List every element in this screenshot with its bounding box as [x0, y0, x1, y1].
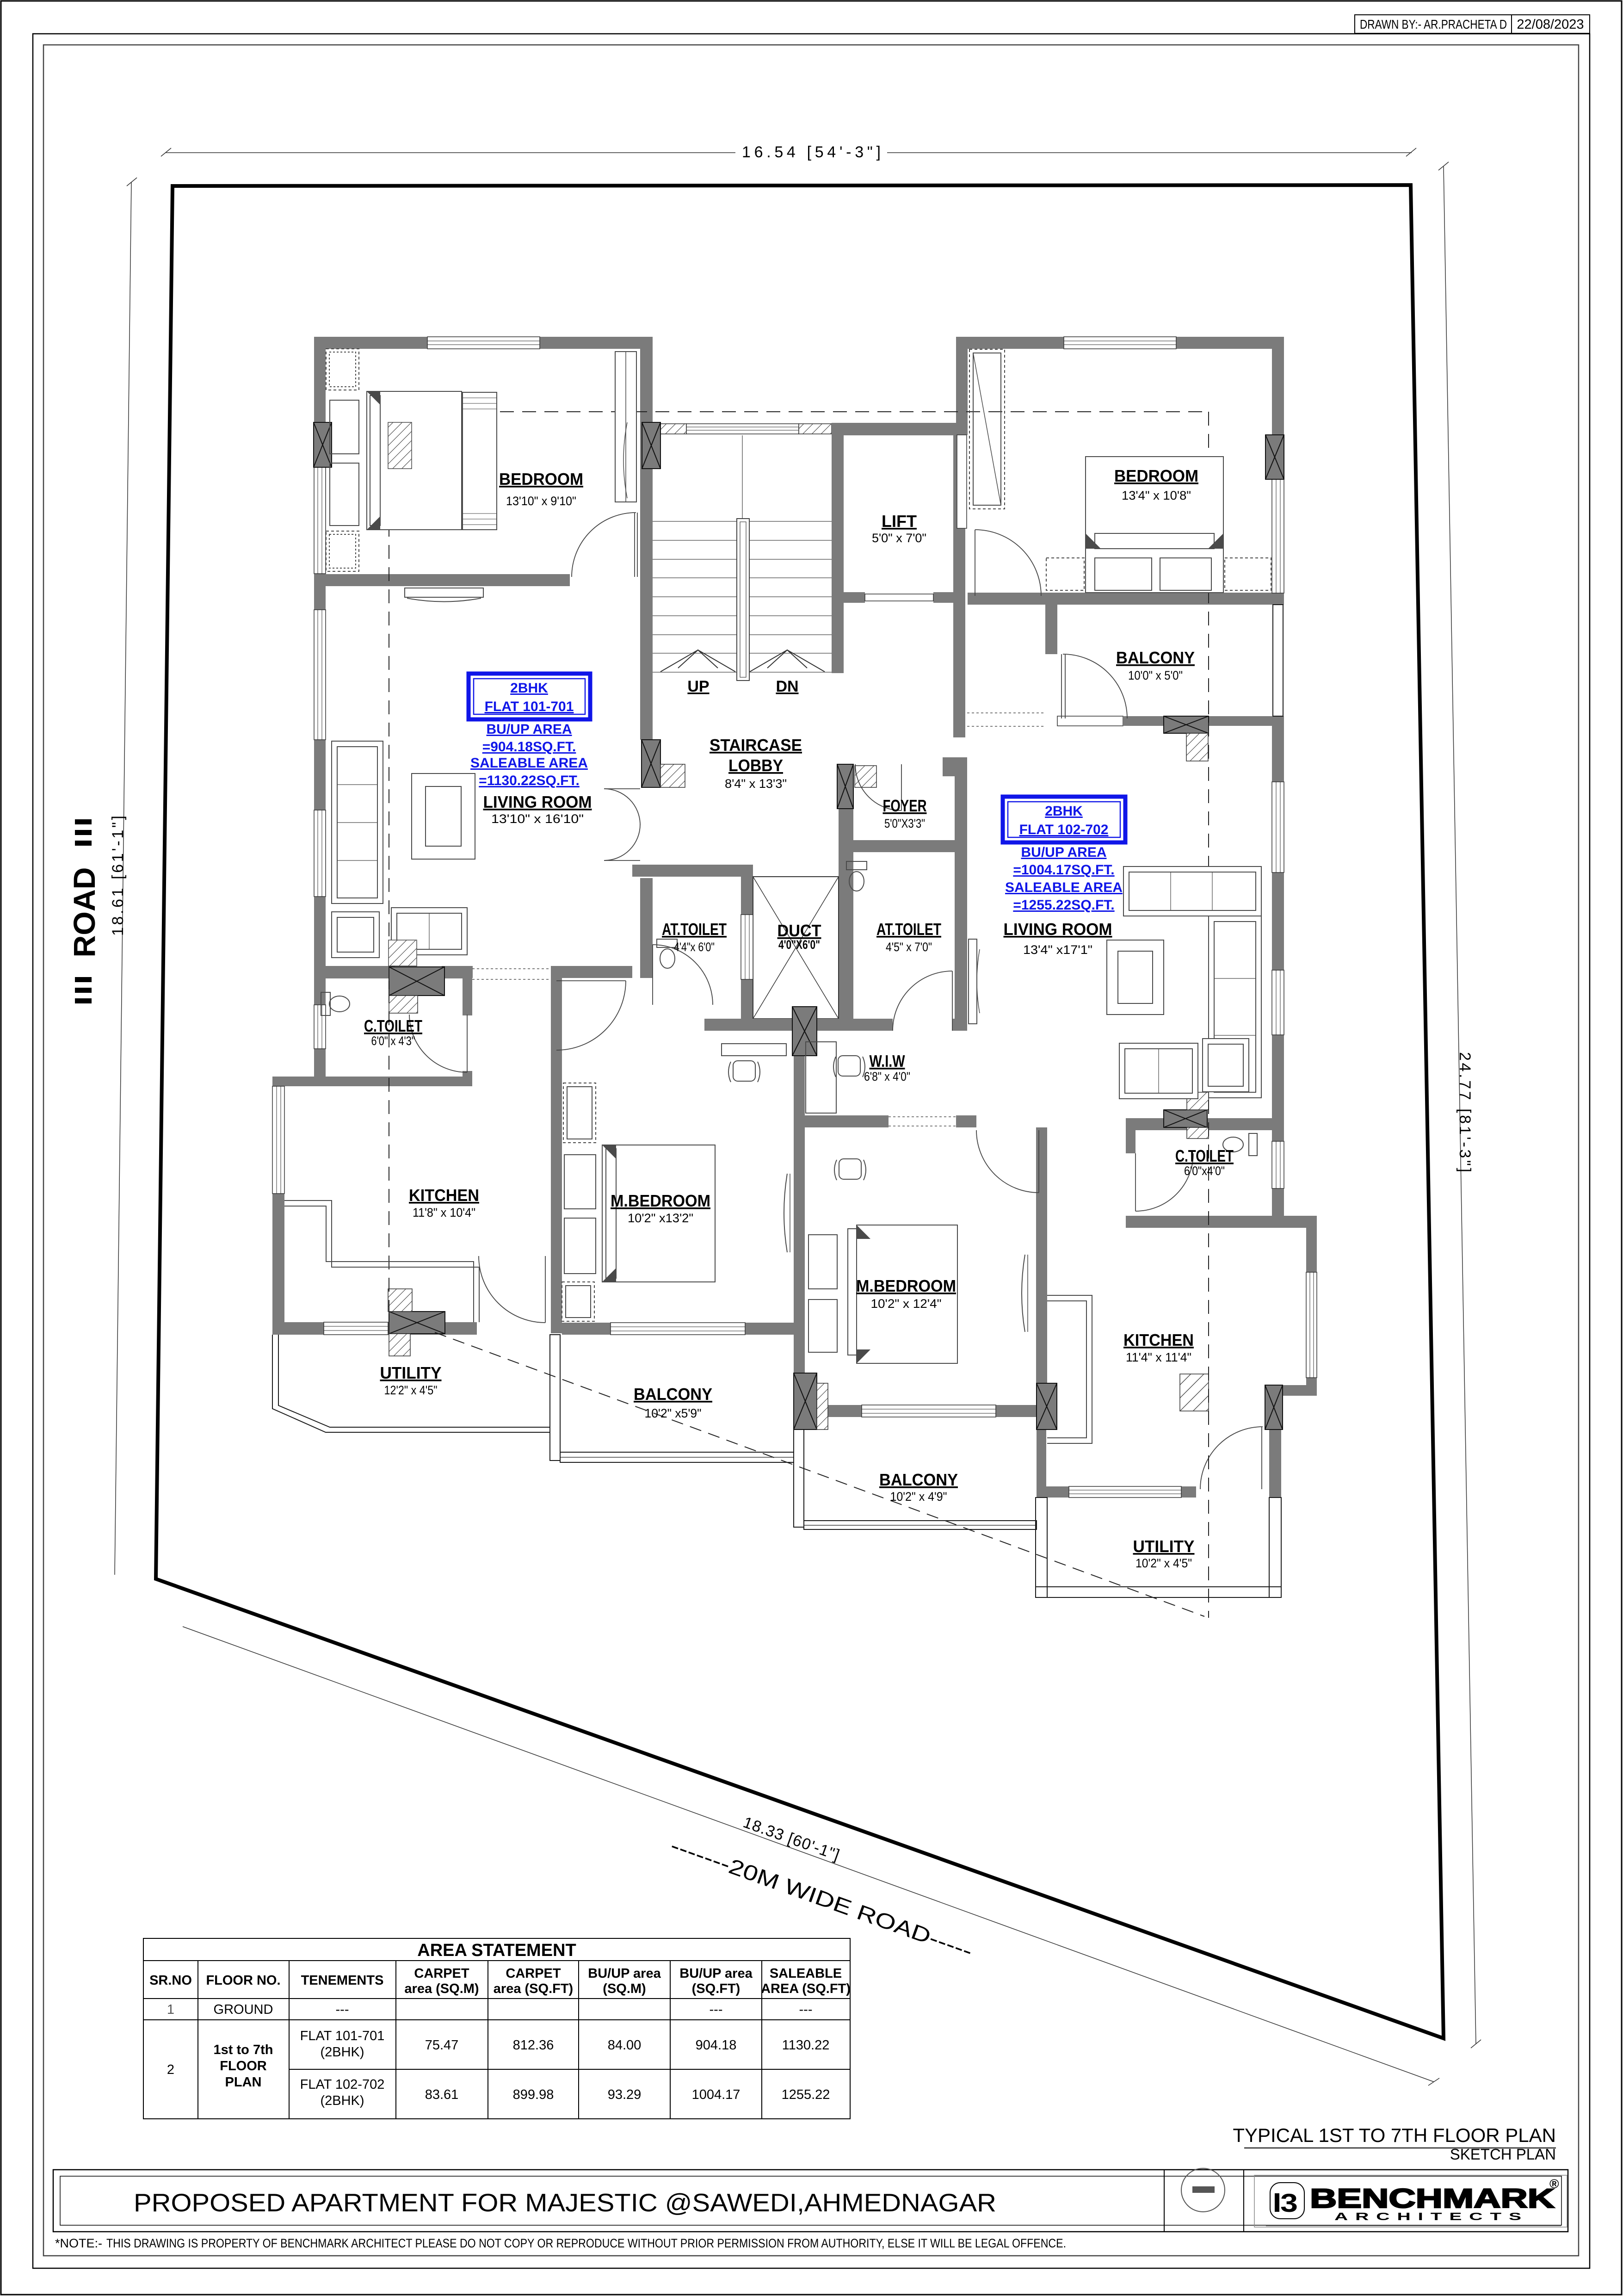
svg-text:FLAT 102-702: FLAT 102-702: [1019, 822, 1109, 837]
svg-text:=1004.17SQ.FT.: =1004.17SQ.FT.: [1013, 862, 1114, 878]
svg-text:93.29: 93.29: [608, 2087, 642, 2102]
svg-text:18.61 [61'-1"]: 18.61 [61'-1"]: [109, 816, 127, 936]
svg-text:10'2" x 12'4": 10'2" x 12'4": [871, 1297, 942, 1311]
svg-text:BALCONY: BALCONY: [634, 1385, 712, 1404]
svg-text:AT.TOILET: AT.TOILET: [876, 920, 941, 939]
svg-text:1255.22: 1255.22: [782, 2087, 830, 2102]
svg-text:area (SQ.FT): area (SQ.FT): [494, 1981, 573, 1996]
svg-text:PLAN: PLAN: [225, 2075, 262, 2090]
svg-text:GROUND: GROUND: [214, 2002, 273, 2017]
svg-text:UP: UP: [687, 678, 709, 695]
svg-text:BALCONY: BALCONY: [879, 1470, 958, 1489]
svg-text:SR.NO: SR.NO: [149, 1973, 192, 1988]
svg-text:BENCHMARK: BENCHMARK: [1310, 2184, 1555, 2214]
svg-text:M.BEDROOM: M.BEDROOM: [611, 1191, 710, 1210]
svg-text:13'4" x 10'8": 13'4" x 10'8": [1122, 489, 1191, 502]
svg-text:12'2" x 4'5": 12'2" x 4'5": [384, 1383, 438, 1397]
svg-text:DRAWN BY:- AR.PRACHETA D: DRAWN BY:- AR.PRACHETA D: [1360, 17, 1507, 31]
svg-text:6'0" x 4'3": 6'0" x 4'3": [371, 1034, 415, 1048]
svg-text:BU/UP area: BU/UP area: [679, 1966, 753, 1981]
svg-text:STAIRCASE: STAIRCASE: [710, 736, 802, 755]
svg-text:84.00: 84.00: [608, 2038, 642, 2053]
svg-text:3: 3: [1280, 2188, 1298, 2217]
svg-text:KITCHEN: KITCHEN: [409, 1186, 479, 1205]
svg-text:TYPICAL 1ST TO 7TH FLOOR PLAN: TYPICAL 1ST TO 7TH FLOOR PLAN: [1233, 2124, 1556, 2146]
svg-text:=904.18SQ.FT.: =904.18SQ.FT.: [482, 739, 576, 755]
svg-text:4'0"X6'0": 4'0"X6'0": [778, 938, 820, 952]
svg-text:LOBBY: LOBBY: [728, 756, 783, 775]
svg-text:KITCHEN: KITCHEN: [1123, 1331, 1194, 1349]
svg-text:FLAT 101-701: FLAT 101-701: [300, 2029, 385, 2043]
svg-text:---: ---: [710, 2002, 723, 2017]
svg-text:area (SQ.M): area (SQ.M): [404, 1981, 479, 1996]
svg-text:ROAD: ROAD: [67, 867, 101, 958]
svg-text:LIVING ROOM: LIVING ROOM: [1004, 920, 1112, 939]
svg-text:13'10" x 9'10": 13'10" x 9'10": [506, 494, 576, 508]
svg-text:CARPET: CARPET: [414, 1966, 469, 1981]
svg-text:10'2" x5'9": 10'2" x5'9": [645, 1406, 702, 1420]
svg-text:C.TOILET: C.TOILET: [364, 1016, 422, 1035]
svg-text:=1130.22SQ.FT.: =1130.22SQ.FT.: [479, 773, 580, 788]
svg-text:(SQ.M): (SQ.M): [603, 1981, 646, 1996]
svg-text:SALEABLE: SALEABLE: [770, 1966, 842, 1981]
svg-text:16.54 [54'-3"]: 16.54 [54'-3"]: [742, 143, 881, 161]
svg-text:24.77 [81'-3"]: 24.77 [81'-3"]: [1456, 1052, 1474, 1172]
svg-text:1st to 7th: 1st to 7th: [214, 2042, 273, 2057]
svg-text:BU/UP AREA: BU/UP AREA: [1021, 845, 1106, 860]
svg-text:FLOOR: FLOOR: [220, 2059, 267, 2073]
svg-text:4'4"x 6'0": 4'4"x 6'0": [674, 940, 715, 954]
svg-text:BEDROOM: BEDROOM: [1114, 466, 1198, 485]
svg-text:SKETCH PLAN: SKETCH PLAN: [1450, 2146, 1556, 2163]
svg-text:812.36: 812.36: [513, 2038, 554, 2053]
svg-text:(2BHK): (2BHK): [320, 2045, 364, 2060]
svg-text:1004.17: 1004.17: [692, 2087, 741, 2102]
svg-text:1: 1: [167, 2002, 174, 2017]
svg-text:1130.22: 1130.22: [782, 2038, 830, 2053]
svg-text:LIVING ROOM: LIVING ROOM: [483, 792, 592, 811]
svg-text:M.BEDROOM: M.BEDROOM: [856, 1276, 956, 1295]
svg-text:*NOTE:-: *NOTE:-: [55, 2236, 102, 2250]
svg-text:DN: DN: [776, 678, 798, 695]
svg-text:DUCT: DUCT: [778, 921, 821, 940]
svg-text:10'0" x 5'0": 10'0" x 5'0": [1128, 668, 1183, 682]
svg-text:(2BHK): (2BHK): [320, 2093, 364, 2108]
svg-text:---: ---: [336, 2002, 349, 2017]
svg-text:904.18: 904.18: [696, 2038, 737, 2053]
svg-text:UTILITY: UTILITY: [380, 1363, 442, 1382]
svg-text:(SQ.FT): (SQ.FT): [692, 1981, 741, 1996]
svg-text:SALEABLE AREA: SALEABLE AREA: [1005, 880, 1123, 895]
svg-text:83.61: 83.61: [425, 2087, 459, 2102]
svg-text:13'4" x17'1": 13'4" x17'1": [1023, 943, 1092, 957]
svg-text:11'8" x 10'4": 11'8" x 10'4": [413, 1206, 475, 1219]
svg-text:UTILITY: UTILITY: [1133, 1537, 1195, 1556]
svg-text:22/08/2023: 22/08/2023: [1517, 17, 1584, 32]
svg-text:10'2" x 4'5": 10'2" x 4'5": [1135, 1556, 1192, 1570]
svg-text:75.47: 75.47: [425, 2038, 459, 2053]
svg-text:FLAT 101-701: FLAT 101-701: [485, 699, 574, 714]
svg-text:5'0"X3'3": 5'0"X3'3": [884, 817, 925, 830]
svg-text:5'0" x 7'0": 5'0" x 7'0": [872, 531, 926, 545]
svg-text:BU/UP area: BU/UP area: [588, 1966, 661, 1981]
svg-text:SALEABLE AREA: SALEABLE AREA: [470, 755, 588, 771]
svg-text:4'5" x 7'0": 4'5" x 7'0": [886, 940, 932, 954]
svg-text:C.TOILET: C.TOILET: [1175, 1146, 1234, 1165]
svg-text:BU/UP AREA: BU/UP AREA: [486, 722, 572, 737]
svg-text:2BHK: 2BHK: [1045, 804, 1083, 819]
svg-text:FLAT 102-702: FLAT 102-702: [300, 2077, 385, 2092]
svg-text:PROPOSED APARTMENT FOR MAJESTI: PROPOSED APARTMENT FOR MAJESTIC @SAWEDI,…: [134, 2188, 996, 2217]
svg-text:13'10" x 16'10": 13'10" x 16'10": [491, 812, 584, 826]
svg-text:FLOOR NO.: FLOOR NO.: [206, 1973, 280, 1988]
svg-text:---: ---: [799, 2002, 813, 2017]
svg-text:2BHK: 2BHK: [510, 681, 548, 696]
svg-text:AREA (SQ.FT): AREA (SQ.FT): [761, 1981, 851, 1996]
svg-text:10'2" x13'2": 10'2" x13'2": [628, 1211, 693, 1225]
svg-text:2: 2: [167, 2062, 174, 2077]
svg-text:W.I.W: W.I.W: [870, 1052, 905, 1071]
svg-text:10'2" x 4'9": 10'2" x 4'9": [890, 1490, 947, 1504]
svg-text:ARCHITECTS: ARCHITECTS: [1334, 2210, 1529, 2222]
svg-text:®: ®: [1549, 2177, 1559, 2191]
svg-text:AREA STATEMENT: AREA STATEMENT: [417, 1941, 576, 1960]
svg-text:11'4" x 11'4": 11'4" x 11'4": [1126, 1350, 1191, 1364]
svg-text:8'4" x 13'3": 8'4" x 13'3": [725, 777, 787, 791]
svg-text:LIFT: LIFT: [882, 512, 917, 531]
svg-text:TENEMENTS: TENEMENTS: [301, 1973, 384, 1988]
svg-text:THIS DRAWING IS PROPERTY OF BE: THIS DRAWING IS PROPERTY OF BENCHMARK AR…: [106, 2236, 1066, 2250]
svg-text:FOYER: FOYER: [883, 796, 927, 815]
svg-text:6'8" x 4'0": 6'8" x 4'0": [864, 1070, 910, 1083]
svg-text:CARPET: CARPET: [506, 1966, 561, 1981]
svg-text:=1255.22SQ.FT.: =1255.22SQ.FT.: [1013, 897, 1114, 913]
svg-text:BALCONY: BALCONY: [1116, 648, 1195, 667]
svg-text:899.98: 899.98: [513, 2087, 554, 2102]
svg-text:6'0"x4'0": 6'0"x4'0": [1184, 1164, 1225, 1178]
svg-text:AT.TOILET: AT.TOILET: [662, 920, 727, 939]
svg-text:BEDROOM: BEDROOM: [499, 470, 583, 489]
